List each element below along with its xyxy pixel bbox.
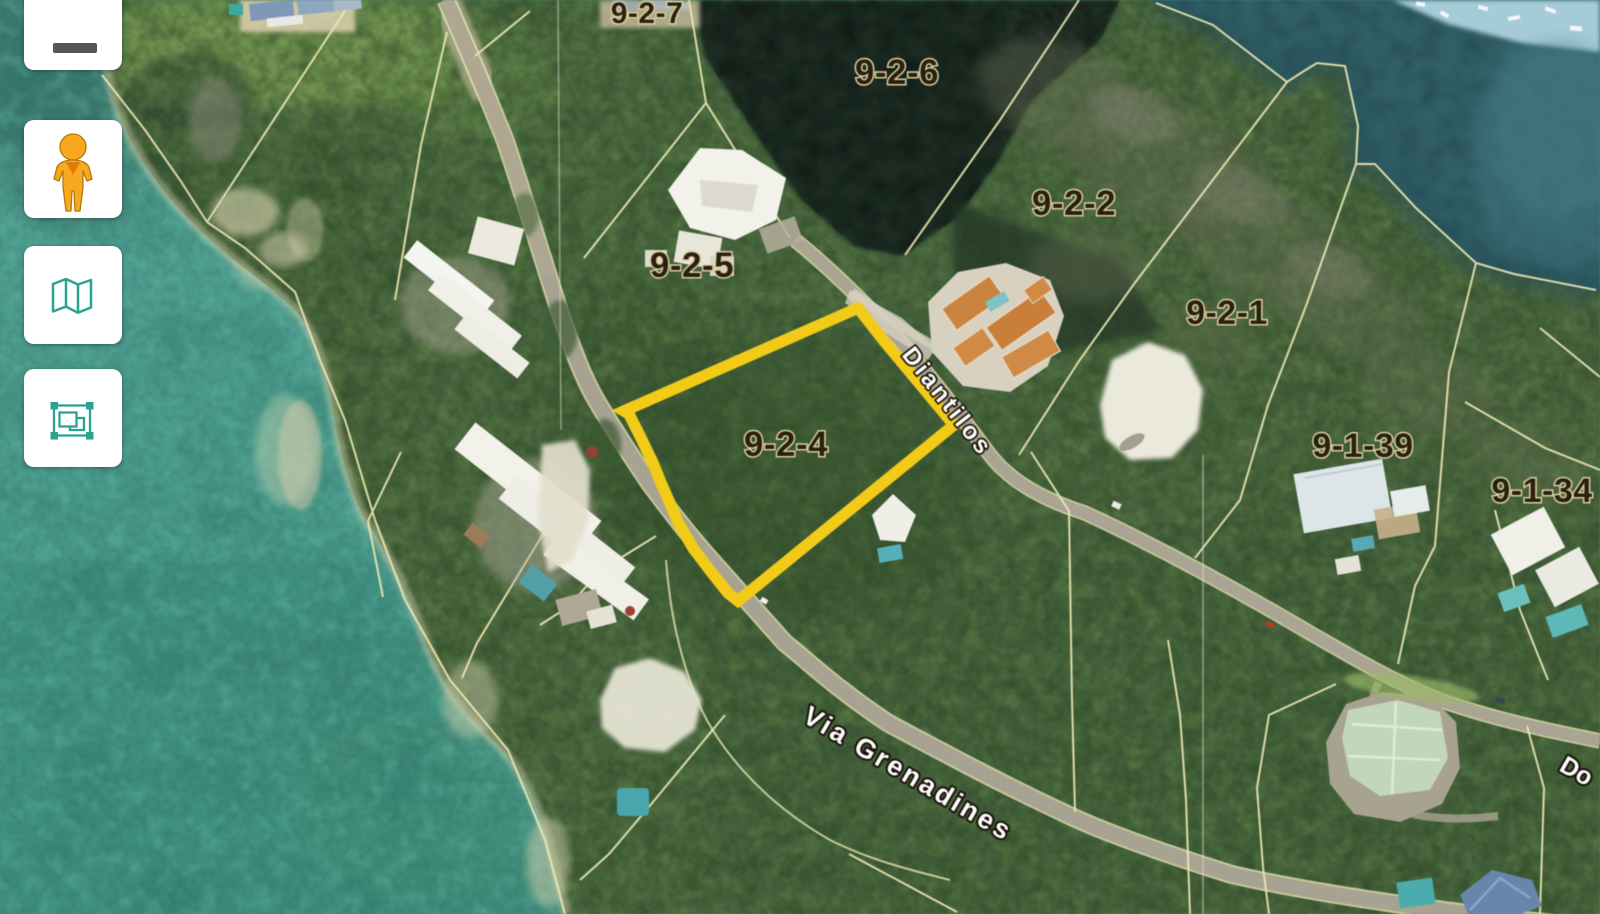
svg-text:9-2-4: 9-2-4: [744, 425, 828, 464]
svg-text:9-1-39: 9-1-39: [1312, 427, 1413, 465]
svg-text:9-2-6: 9-2-6: [855, 53, 939, 92]
svg-text:9-2-5: 9-2-5: [650, 246, 734, 285]
svg-text:9-2-2: 9-2-2: [1032, 184, 1116, 223]
svg-text:9-2-7: 9-2-7: [611, 0, 684, 30]
svg-text:9-1-34: 9-1-34: [1491, 472, 1592, 510]
svg-text:9-2-1: 9-2-1: [1186, 294, 1268, 332]
